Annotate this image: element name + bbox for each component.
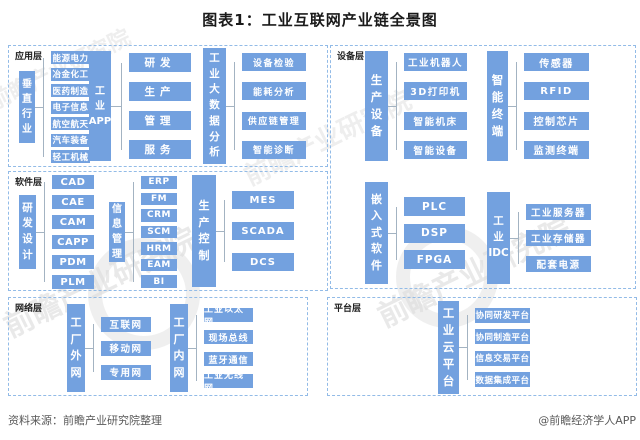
node-box: 蓝牙通信	[204, 352, 253, 366]
group-header-info-management: 信 息 管 理	[109, 202, 125, 262]
figure-canvas: 前瞻产业研究院 前瞻产业研究院 前瞻产业研究院 前瞻产业研究院 图表1：工业互联…	[0, 0, 640, 440]
item-list: 协同研发平台 协同制造平台 信息交易平台 数据集成平台	[467, 308, 530, 388]
group-industrial-idc: 工 业 IDC 工业服务器 工业存储器 配套电源	[487, 192, 591, 284]
item-list: 研发 生产 管理 服务	[121, 53, 191, 159]
item-list: PLC DSP FPGA	[396, 197, 465, 269]
connector-line	[36, 232, 44, 233]
node-box: 能源电力	[51, 51, 90, 64]
node-box: RFID	[524, 82, 589, 100]
group-embedded-software: 嵌 入 式 软 件 PLC DSP FPGA	[365, 182, 465, 284]
item-list: 设备检验 能耗分析 供应链管理 智能诊断	[234, 53, 306, 159]
node-box: SCM	[141, 226, 177, 239]
node-box: 智能诊断	[242, 141, 306, 159]
connector-line	[226, 106, 234, 107]
connector-line	[111, 106, 121, 107]
node-box: 管理	[129, 111, 191, 130]
group-header-embedded-software: 嵌 入 式 软 件	[365, 182, 388, 284]
item-list: 工业服务器 工业存储器 配套电源	[518, 204, 591, 272]
item-list: 工业以太网 现场总线 蓝牙通信 工业无线网	[196, 308, 253, 388]
node-box: ERP	[141, 176, 177, 189]
group-info-management: 信 息 管 理 ERP FM CRM SCM HRM EAM BI	[109, 176, 177, 288]
node-box: 信息交易平台	[475, 351, 530, 366]
node-box: 现场总线	[204, 330, 253, 344]
section-label-platform: 平台层	[334, 301, 361, 314]
node-box: 服务	[129, 140, 191, 159]
node-box: 冶金化工	[51, 68, 90, 81]
node-box: 传感器	[524, 53, 589, 71]
node-box: 医药制造	[51, 84, 90, 97]
node-box: 控制芯片	[524, 112, 589, 130]
node-box: 移动网	[101, 341, 151, 356]
section-software-layer: 软件层 研 发 设 计 CAD CAE CAM CAPP PDM PLM 信 息…	[8, 171, 328, 291]
node-box: SCADA	[232, 222, 294, 240]
connector-line	[35, 107, 43, 108]
connector-line	[125, 232, 133, 233]
group-header-production-control: 生 产 控 制	[192, 175, 216, 287]
item-list: 工业机器人 3D打印机 智能机床 智能设备	[396, 53, 467, 159]
node-box: PLC	[404, 197, 465, 216]
group-industrial-cloud-platform: 工 业 云 平 台 协同研发平台 协同制造平台 信息交易平台 数据集成平台	[438, 301, 530, 394]
node-box: CRM	[141, 209, 177, 222]
connector-line	[459, 347, 467, 348]
node-box: 工业服务器	[526, 204, 591, 220]
node-box: 工业机器人	[404, 53, 467, 71]
connector-line	[216, 231, 224, 232]
credit-text: @前瞻经济学人APP	[538, 412, 636, 428]
node-box: 工业无线网	[204, 374, 253, 388]
node-box: 能耗分析	[242, 82, 306, 100]
group-header-vertical-industry: 垂 直 行 业	[19, 71, 35, 143]
group-rd-design: 研 发 设 计 CAD CAE CAM CAPP PDM PLM	[19, 175, 94, 289]
node-box: 航空航天	[51, 117, 90, 130]
connector-line	[508, 106, 516, 107]
node-box: DCS	[232, 253, 294, 271]
group-intelligent-terminal: 智 能 终 端 传感器 RFID 控制芯片 监测终端	[487, 51, 589, 161]
connector-line	[388, 233, 396, 234]
node-box: 3D打印机	[404, 82, 467, 100]
group-header-industrial-app: 工 业 APP	[89, 51, 111, 161]
group-production-equipment: 生 产 设 备 工业机器人 3D打印机 智能机床 智能设备	[365, 51, 467, 161]
node-box: 工业存储器	[526, 230, 591, 246]
group-header-production-equipment: 生 产 设 备	[365, 51, 388, 161]
group-factory-intranet: 工 厂 内 网 工业以太网 现场总线 蓝牙通信 工业无线网	[170, 304, 253, 392]
node-box: 轻工机械	[51, 150, 90, 163]
connector-line	[85, 348, 93, 349]
node-box: 协同制造平台	[475, 329, 530, 344]
item-list: 能源电力 冶金化工 医药制造 电子信息 航空航天 汽车装备 轻工机械	[43, 51, 90, 163]
node-box: CAE	[52, 195, 94, 209]
node-box: 供应链管理	[242, 112, 306, 130]
node-box: 生产	[129, 82, 191, 101]
group-factory-extranet: 工 厂 外 网 互联网 移动网 专用网	[67, 304, 151, 392]
group-header-industrial-idc: 工 业 IDC	[487, 192, 510, 284]
group-header-factory-extranet: 工 厂 外 网	[67, 304, 85, 392]
node-box: 研发	[129, 53, 191, 72]
group-header-intelligent-terminal: 智 能 终 端	[487, 51, 508, 161]
item-list: MES SCADA DCS	[224, 191, 294, 271]
node-box: 智能设备	[404, 141, 467, 159]
node-box: PLM	[52, 275, 94, 289]
source-text: 资料来源：前瞻产业研究院整理	[8, 412, 162, 428]
item-list: CAD CAE CAM CAPP PDM PLM	[44, 175, 94, 289]
node-box: 监测终端	[524, 141, 589, 159]
section-label-equipment: 设备层	[337, 49, 364, 62]
node-box: EAM	[141, 259, 177, 272]
node-box: 配套电源	[526, 256, 591, 272]
node-box: HRM	[141, 242, 177, 255]
node-box: 设备检验	[242, 53, 306, 71]
node-box: 汽车装备	[51, 134, 90, 147]
group-industrial-app: 工 业 APP 研发 生产 管理 服务	[89, 51, 191, 161]
section-equipment-layer: 设备层 生 产 设 备 工业机器人 3D打印机 智能机床 智能设备 智 能 终 …	[330, 45, 636, 289]
node-box: 工业以太网	[204, 308, 253, 322]
connector-line	[388, 106, 396, 107]
group-header-factory-intranet: 工 厂 内 网	[170, 304, 188, 392]
page-title: 图表1：工业互联网产业链全景图	[0, 9, 640, 30]
node-box: FPGA	[404, 250, 465, 269]
node-box: 智能机床	[404, 112, 467, 130]
node-box: CAM	[52, 215, 94, 229]
group-header-industrial-big-data: 工 业 大 数 据 分 析	[203, 48, 226, 164]
connector-line	[510, 238, 518, 239]
node-box: DSP	[404, 224, 465, 243]
group-header-industrial-cloud-platform: 工 业 云 平 台	[438, 301, 459, 394]
connector-line	[188, 348, 196, 349]
node-box: CAD	[52, 175, 94, 189]
item-list: 传感器 RFID 控制芯片 监测终端	[516, 53, 589, 159]
node-box: 互联网	[101, 317, 151, 332]
section-application-layer: 应用层 垂 直 行 业 能源电力 冶金化工 医药制造 电子信息 航空航天 汽车装…	[8, 45, 328, 167]
node-box: 数据集成平台	[475, 372, 530, 387]
item-list: 互联网 移动网 专用网	[93, 317, 151, 380]
node-box: MES	[232, 191, 294, 209]
group-vertical-industry: 垂 直 行 业 能源电力 冶金化工 医药制造 电子信息 航空航天 汽车装备 轻工…	[19, 51, 90, 163]
item-list: ERP FM CRM SCM HRM EAM BI	[133, 176, 177, 288]
node-box: CAPP	[52, 235, 94, 249]
section-network-layer: 网络层 工 厂 外 网 互联网 移动网 专用网 工 厂 内 网 工业以太网 现场…	[8, 297, 308, 396]
node-box: 协同研发平台	[475, 308, 530, 323]
group-header-rd-design: 研 发 设 计	[19, 195, 36, 269]
node-box: 专用网	[101, 365, 151, 380]
node-box: PDM	[52, 255, 94, 269]
section-label-network: 网络层	[15, 301, 42, 314]
node-box: FM	[141, 193, 177, 206]
section-platform-layer: 平台层 工 业 云 平 台 协同研发平台 协同制造平台 信息交易平台 数据集成平…	[327, 297, 637, 396]
group-production-control: 生 产 控 制 MES SCADA DCS	[192, 175, 294, 287]
node-box: BI	[141, 275, 177, 288]
node-box: 电子信息	[51, 101, 90, 114]
group-industrial-big-data: 工 业 大 数 据 分 析 设备检验 能耗分析 供应链管理 智能诊断	[203, 48, 306, 164]
